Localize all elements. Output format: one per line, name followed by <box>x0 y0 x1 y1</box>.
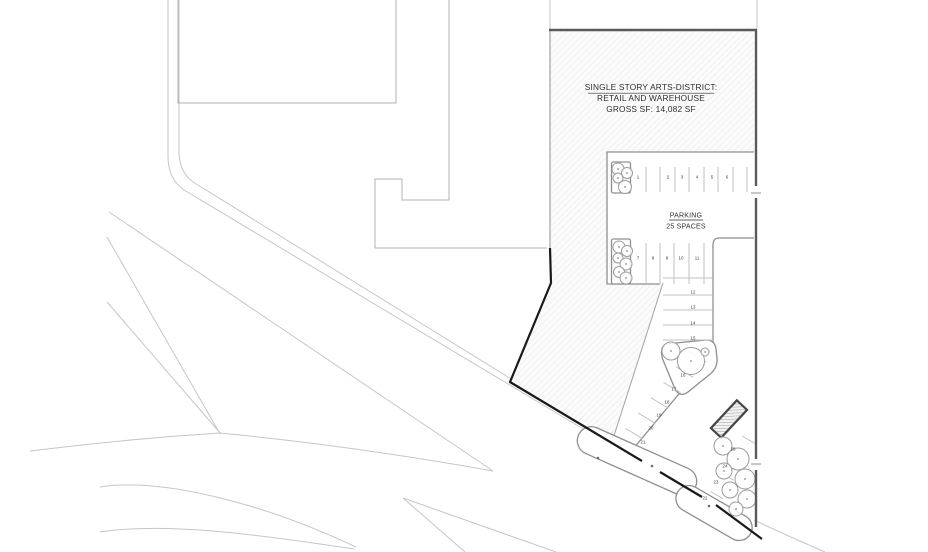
tree-center-dot <box>625 277 627 279</box>
tree-center-dot <box>746 498 748 500</box>
tree-center-dot <box>618 271 620 273</box>
survey-point-dot <box>651 465 654 468</box>
parking-space-number: 19 <box>657 413 662 418</box>
parking-space-number: 10 <box>679 256 684 261</box>
ramp-arc-upper <box>100 485 356 547</box>
building-label-line1: SINGLE STORY ARTS-DISTRICT: <box>585 82 718 92</box>
building-label-line2: RETAIL AND WAREHOUSE <box>597 93 705 103</box>
median-island-edge <box>30 433 493 471</box>
parking-space-number: 25 <box>731 447 736 452</box>
parking-space-number: 24 <box>723 464 728 469</box>
tree-center-dot <box>690 360 692 362</box>
street-curb-inner <box>179 0 545 400</box>
parking-space-number: 23 <box>714 480 719 485</box>
tree-center-dot <box>618 246 620 248</box>
tree-center-dot <box>626 250 628 252</box>
tree-center-dot <box>744 478 746 480</box>
tree-center-dot <box>625 263 627 265</box>
parking-space-number: 21 <box>641 440 646 445</box>
lane-line-b <box>107 237 219 432</box>
parking-label-title: PARKING <box>670 213 702 220</box>
tree-center-dot <box>723 470 725 472</box>
parking-space-number: 18 <box>665 400 670 405</box>
building-label-line3: GROSS SF: 14,082 SF <box>606 104 696 114</box>
lane-line-c <box>107 302 221 434</box>
tree-center-dot <box>617 257 619 259</box>
tree-center-dot <box>626 172 628 174</box>
tree-center-dot <box>670 350 672 352</box>
parking-label-subtitle: 25 SPACES <box>666 224 706 231</box>
adjacent-building-east <box>375 0 547 248</box>
ramp-sliver-upper <box>403 498 556 552</box>
parking-space-number: 17 <box>672 387 677 392</box>
site-plan-drawing: SINGLE STORY ARTS-DISTRICT: RETAIL AND W… <box>0 0 928 552</box>
tree-center-dot <box>737 458 739 460</box>
parking-space-number: 12 <box>691 290 696 295</box>
parking-space-number: 13 <box>691 305 696 310</box>
tree-center-dot <box>704 351 706 353</box>
survey-point-dot <box>708 505 711 508</box>
adjacent-building-north <box>178 0 396 103</box>
survey-point-dot <box>597 457 600 460</box>
parking-space-number: 20 <box>649 426 654 431</box>
parking-space-number: 15 <box>691 336 696 341</box>
tree-center-dot <box>735 508 737 510</box>
parking-space-number: 11 <box>695 256 700 261</box>
adjacent-buildings <box>178 0 547 248</box>
parking-space-number: 16 <box>681 373 686 378</box>
ramp-arc-lower <box>100 528 354 549</box>
tree-center-dot <box>624 186 626 188</box>
tree-center-dot <box>617 177 619 179</box>
parking-space-number: 14 <box>691 321 696 326</box>
tree-center-dot <box>722 445 724 447</box>
parking-space-number: 22 <box>703 496 708 501</box>
site-plan-canvas: SINGLE STORY ARTS-DISTRICT: RETAIL AND W… <box>0 0 928 552</box>
tree-center-dot <box>729 489 731 491</box>
ramp-sliver-lower <box>403 498 465 552</box>
tree-center-dot <box>617 168 619 170</box>
